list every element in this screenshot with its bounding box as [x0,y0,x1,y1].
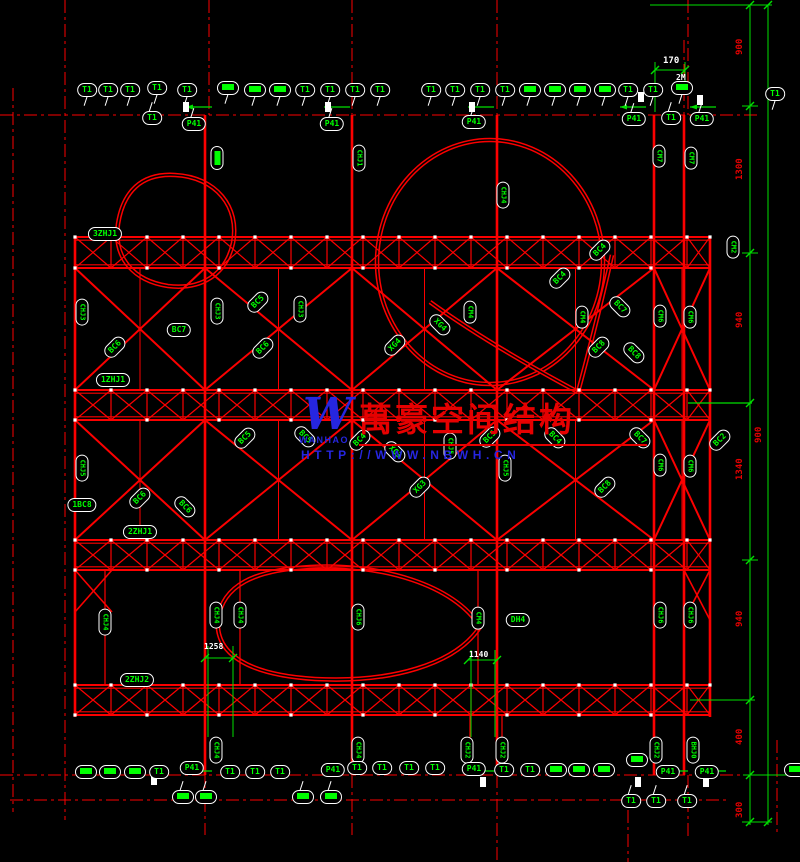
node [505,683,508,686]
node [181,235,184,238]
node [361,266,364,269]
dim-value-bottom: 1140 [469,650,488,659]
dim-value: 400 [735,729,745,745]
section-marker [151,775,157,785]
arrowhead [186,769,193,774]
node [577,235,580,238]
watermark-url: HTTP://WWW.NBWH.CN [301,448,520,462]
dim-value: 940 [735,611,745,627]
node [181,683,184,686]
node [73,568,76,571]
node [289,388,292,391]
node [217,266,220,269]
node [505,388,508,391]
section-marker [697,95,703,105]
dim-note: 2M [676,73,686,82]
curve-circle [377,140,603,384]
node [73,683,76,686]
node [73,235,76,238]
node [708,538,711,541]
node [433,713,436,716]
node [217,568,220,571]
node [181,538,184,541]
dim-value: 1340 [735,458,745,480]
node [397,388,400,391]
node [505,538,508,541]
node [361,683,364,686]
node [289,538,292,541]
section-marker [480,777,486,787]
node [541,683,544,686]
dim-value: 1300 [735,158,745,180]
node [361,713,364,716]
node [577,538,580,541]
node [361,388,364,391]
node [613,538,616,541]
arrowhead [662,769,669,774]
node [253,683,256,686]
section-marker [325,102,331,112]
dim-value: 300 [735,802,745,818]
node [109,683,112,686]
node [289,418,292,421]
node [649,713,652,716]
node [289,266,292,269]
arrowhead [690,105,697,110]
node [73,713,76,716]
node [649,683,652,686]
node [181,388,184,391]
node [649,388,652,391]
watermark: W WANHAO 萬豪空间结构 HTTP://WWW.NBWH.CN [297,393,662,467]
section-marker [703,777,709,787]
node [708,235,711,238]
node [469,388,472,391]
node [505,568,508,571]
node [361,235,364,238]
watermark-logo-name: WANHAO [299,435,349,445]
node [289,235,292,238]
watermark-company-name: 萬豪空间结构 [359,403,575,437]
section-marker [469,102,475,112]
node [433,388,436,391]
node [397,235,400,238]
node [217,418,220,421]
node [649,568,652,571]
node [577,388,580,391]
node [217,538,220,541]
node [109,538,112,541]
node [73,418,76,421]
node [685,388,688,391]
node [649,266,652,269]
node [577,568,580,571]
node [217,235,220,238]
node [217,388,220,391]
node [397,683,400,686]
node [708,388,711,391]
section-marker [635,777,641,787]
node [649,538,652,541]
node [505,266,508,269]
node [433,266,436,269]
node [253,235,256,238]
node [577,266,580,269]
node [577,683,580,686]
dim-value-bottom: 1258 [204,642,223,651]
node [649,235,652,238]
node [361,568,364,571]
node [145,388,148,391]
node [145,568,148,571]
node [325,538,328,541]
section-marker [638,92,644,102]
node [145,683,148,686]
arrowhead [620,105,627,110]
node [73,538,76,541]
node [397,538,400,541]
arrowhead [700,769,707,774]
node [433,235,436,238]
node [253,388,256,391]
node [469,235,472,238]
node [433,568,436,571]
node [145,266,148,269]
node [73,266,76,269]
node [541,538,544,541]
node [289,713,292,716]
node [325,235,328,238]
dim-value: 900 [735,39,745,55]
node [325,683,328,686]
node [541,235,544,238]
watermark-logo-icon: W [303,395,348,435]
watermark-underline [359,444,647,446]
node [469,538,472,541]
node [145,538,148,541]
node [109,235,112,238]
node [505,713,508,716]
node [289,568,292,571]
node [433,538,436,541]
node [145,713,148,716]
node [73,388,76,391]
arrowhead [468,769,475,774]
node [109,388,112,391]
node [541,388,544,391]
cad-viewport[interactable]: 900130094013409404003009001702M12581140 … [0,0,800,862]
section-marker [183,102,189,112]
curve [218,567,480,680]
node [613,235,616,238]
node [145,418,148,421]
node [253,538,256,541]
node [217,683,220,686]
node [361,538,364,541]
node [289,683,292,686]
node [217,713,220,716]
node [613,388,616,391]
node [433,683,436,686]
dim-value-top: 170 [663,56,679,66]
dim-value: 900 [754,427,764,443]
node [577,713,580,716]
node [685,235,688,238]
node [708,683,711,686]
node [613,683,616,686]
node [505,235,508,238]
node [145,235,148,238]
node [685,683,688,686]
curve-core [218,567,480,680]
node [685,538,688,541]
dim-value: 940 [735,312,745,328]
